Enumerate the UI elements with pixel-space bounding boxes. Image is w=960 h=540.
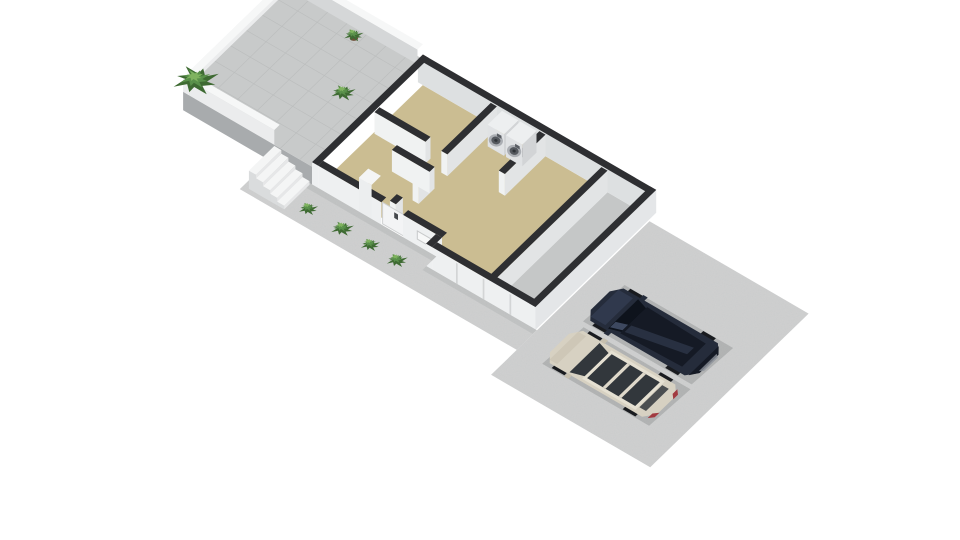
garage-door-seam-3 bbox=[510, 294, 512, 315]
garage-door-seam-3 bbox=[510, 294, 512, 315]
floorplan-3d-scene bbox=[0, 0, 960, 540]
wall-right-face-front bbox=[529, 304, 535, 331]
garage-door-seam-1 bbox=[456, 263, 458, 284]
wall-left-face-front bbox=[312, 162, 318, 188]
garage-door-seam-2 bbox=[483, 278, 485, 299]
floorplan-viewport bbox=[0, 0, 960, 540]
wall-laundry-right-face-front bbox=[499, 171, 505, 196]
wall-bedroom-right-face-front bbox=[441, 151, 447, 176]
garage-door-seam-1 bbox=[456, 263, 458, 284]
garage-door-seam-2 bbox=[483, 278, 485, 299]
